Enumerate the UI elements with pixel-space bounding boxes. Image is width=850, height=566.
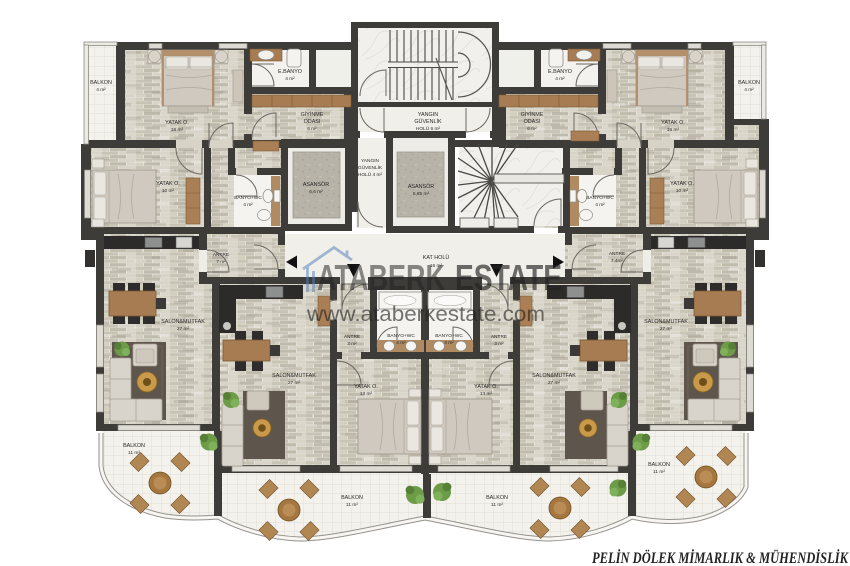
svg-text:HOLÜ 4 m²: HOLÜ 4 m² — [358, 171, 383, 178]
svg-text:ATABERK: ATABERK — [317, 257, 445, 298]
svg-text:7 m²: 7 m² — [216, 259, 226, 265]
svg-text:ANTRE: ANTRE — [213, 252, 229, 258]
svg-text:BALKON: BALKON — [123, 443, 145, 449]
svg-text:BALKON: BALKON — [648, 462, 670, 468]
svg-text:4 m²: 4 m² — [555, 76, 565, 82]
svg-text:SALON&MUTFAK: SALON&MUTFAK — [272, 373, 316, 379]
svg-text:ANTRE: ANTRE — [491, 334, 507, 340]
svg-text:16 m²: 16 m² — [667, 127, 680, 133]
svg-text:YANGIN: YANGIN — [418, 112, 438, 118]
svg-text:ODASI: ODASI — [304, 119, 321, 125]
svg-text:E.BANYO: E.BANYO — [548, 69, 572, 75]
svg-text:4 m²: 4 m² — [744, 87, 754, 93]
svg-text:ASANSÖR: ASANSÖR — [408, 183, 434, 190]
svg-text:4 m²: 4 m² — [444, 340, 454, 346]
svg-text:www.ataberkestate.com: www.ataberkestate.com — [306, 303, 545, 326]
svg-text:BANYO+WC: BANYO+WC — [387, 333, 415, 339]
svg-text:GİYİNME: GİYİNME — [301, 111, 324, 118]
svg-text:BALKON: BALKON — [90, 80, 112, 86]
svg-text:11 m²: 11 m² — [491, 502, 503, 508]
svg-text:13 m²: 13 m² — [480, 391, 493, 397]
svg-text:11 m²: 11 m² — [346, 502, 358, 508]
svg-text:YATAK O.: YATAK O. — [474, 384, 498, 390]
svg-text:27 m²: 27 m² — [548, 380, 561, 386]
svg-text:3 m²: 3 m² — [494, 341, 504, 347]
svg-text:BANYO+WC: BANYO+WC — [435, 333, 463, 339]
svg-text:6 m²: 6 m² — [307, 126, 317, 132]
svg-text:5,85 m²: 5,85 m² — [413, 191, 430, 197]
svg-text:4 m²: 4 m² — [595, 202, 605, 208]
svg-text:HOLÜ 6 m²: HOLÜ 6 m² — [416, 125, 441, 132]
svg-text:ODASI: ODASI — [524, 119, 541, 125]
svg-text:3 m²: 3 m² — [347, 341, 357, 347]
svg-text:BALKON: BALKON — [341, 495, 363, 501]
svg-text:4 m²: 4 m² — [243, 202, 253, 208]
svg-text:10 m²: 10 m² — [676, 188, 689, 194]
svg-text:ANTRE: ANTRE — [609, 251, 625, 257]
svg-text:YATAK O.: YATAK O. — [165, 120, 189, 126]
svg-text:ANTRE: ANTRE — [344, 334, 360, 340]
svg-text:YATAK O.: YATAK O. — [661, 120, 685, 126]
svg-text:BANYO+WC: BANYO+WC — [234, 195, 262, 201]
svg-text:BALKON: BALKON — [486, 495, 508, 501]
svg-text:ESTATE: ESTATE — [455, 257, 562, 298]
svg-text:YATAK O.: YATAK O. — [354, 384, 378, 390]
svg-text:4 m²: 4 m² — [96, 87, 106, 93]
svg-text:SALON&MUTFAK: SALON&MUTFAK — [644, 319, 688, 325]
svg-text:YATAK O.: YATAK O. — [156, 181, 180, 187]
svg-text:27 m²: 27 m² — [288, 380, 301, 386]
svg-text:6,6 m²: 6,6 m² — [309, 189, 323, 195]
svg-text:E.BANYO: E.BANYO — [278, 69, 302, 75]
svg-text:YATAK O.: YATAK O. — [670, 181, 694, 187]
svg-text:GÜVENLİK: GÜVENLİK — [414, 118, 442, 125]
svg-text:YANGIN: YANGIN — [361, 158, 380, 164]
svg-text:GÜVENLİK: GÜVENLİK — [358, 164, 383, 171]
svg-text:BANYO+WC: BANYO+WC — [586, 195, 614, 201]
svg-text:4 m²: 4 m² — [285, 76, 295, 82]
svg-text:SALON&MUTFAK: SALON&MUTFAK — [161, 319, 205, 325]
svg-text:GİYİNME: GİYİNME — [521, 111, 544, 118]
svg-text:PELİN DÖLEK MİMARLIK & MÜHENDİ: PELİN DÖLEK MİMARLIK & MÜHENDİSLİK — [592, 550, 849, 566]
svg-text:13 m²: 13 m² — [360, 391, 373, 397]
svg-text:ASANSÖR: ASANSÖR — [303, 181, 329, 188]
svg-text:27 m²: 27 m² — [177, 326, 190, 332]
svg-text:27 m²: 27 m² — [660, 326, 673, 332]
svg-text:11 m²: 11 m² — [128, 450, 140, 456]
svg-text:6 m²: 6 m² — [527, 126, 537, 132]
svg-text:10 m²: 10 m² — [162, 188, 175, 194]
svg-text:4 m²: 4 m² — [396, 340, 406, 346]
svg-text:SALON&MUTFAK: SALON&MUTFAK — [532, 373, 576, 379]
svg-text:16 m²: 16 m² — [171, 127, 184, 133]
svg-text:7.4m²: 7.4m² — [611, 258, 624, 264]
svg-text:BALKON: BALKON — [738, 80, 760, 86]
svg-text:11 m²: 11 m² — [653, 469, 665, 475]
